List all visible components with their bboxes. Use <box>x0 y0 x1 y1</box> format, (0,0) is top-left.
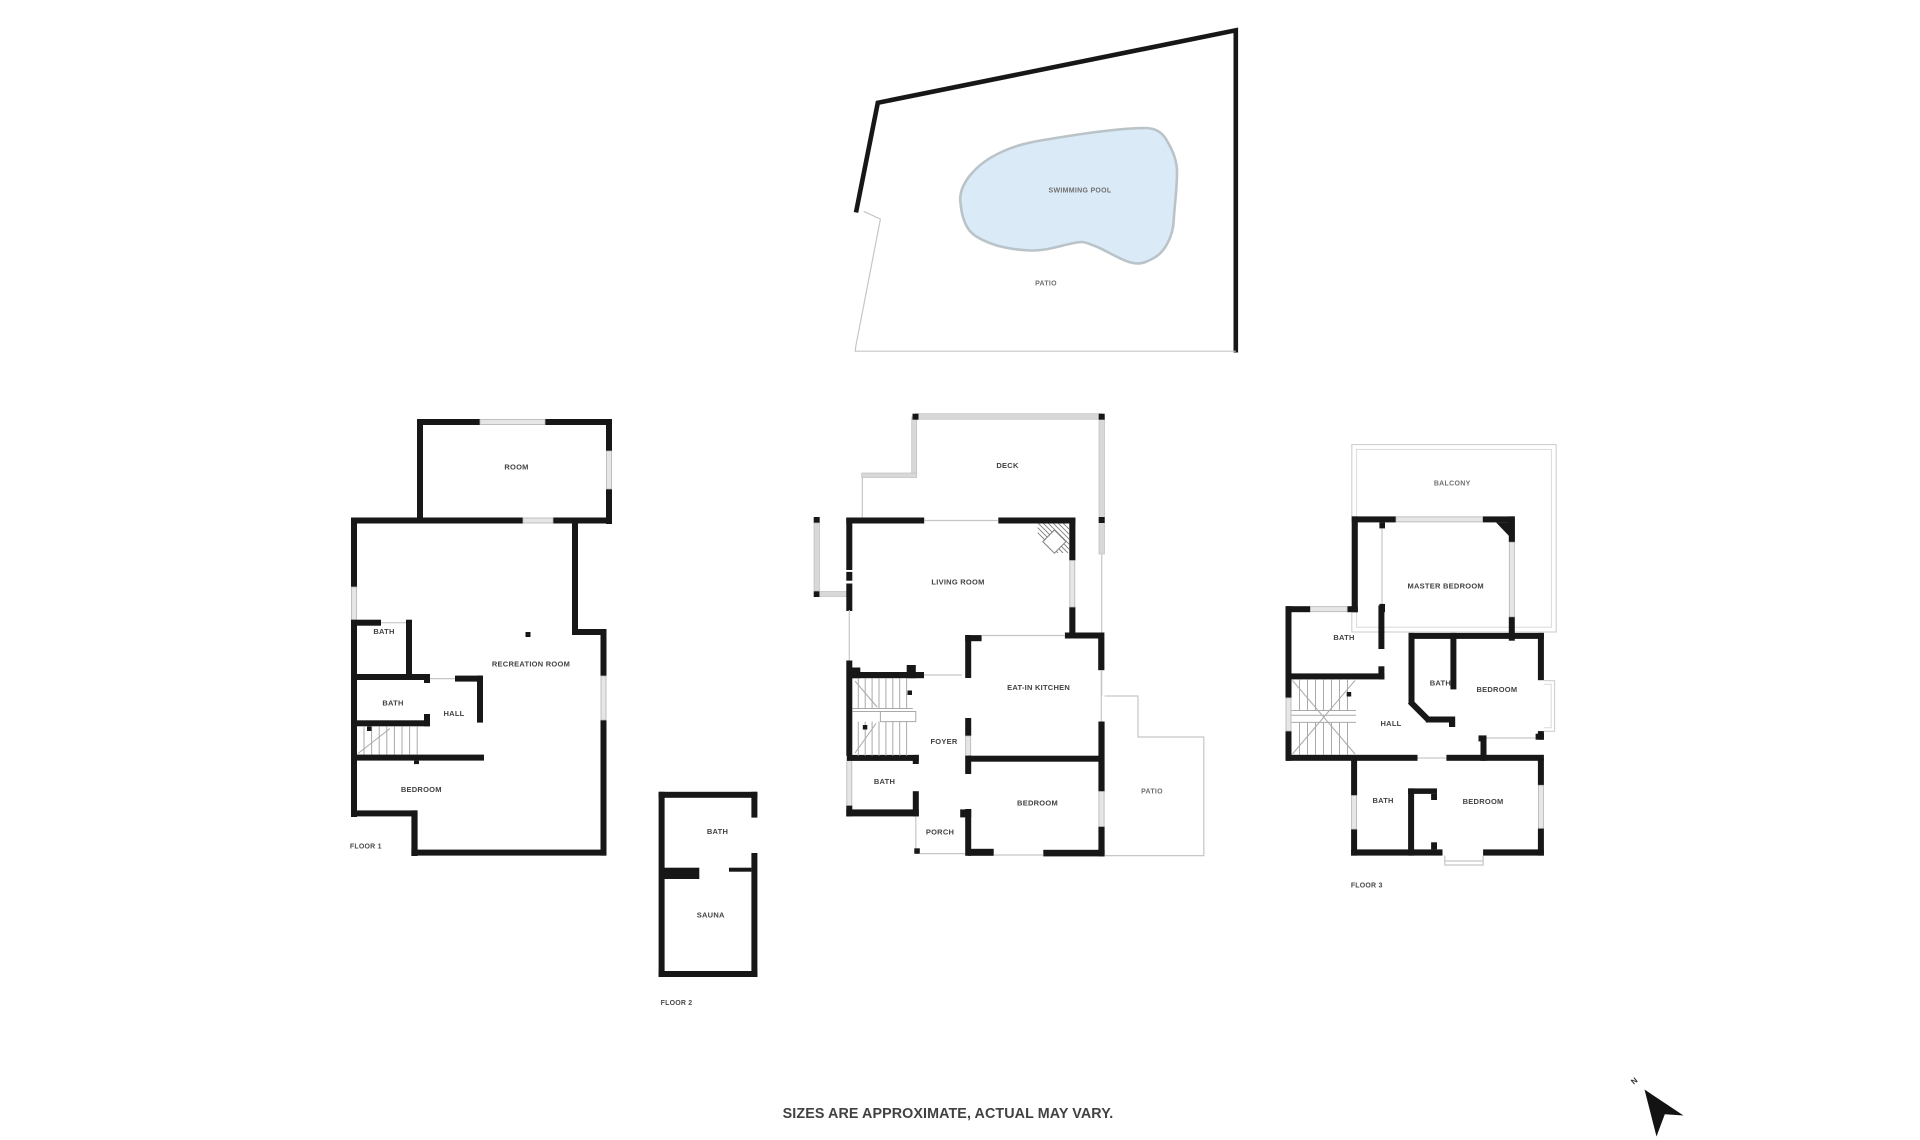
svg-text:HALL: HALL <box>444 709 465 718</box>
svg-text:BEDROOM: BEDROOM <box>1463 797 1504 806</box>
svg-text:FLOOR 2: FLOOR 2 <box>661 1000 693 1007</box>
svg-text:FOYER: FOYER <box>930 737 957 746</box>
svg-text:PORCH: PORCH <box>926 828 954 837</box>
svg-text:BATH: BATH <box>707 827 728 836</box>
svg-text:ROOM: ROOM <box>504 463 528 472</box>
svg-text:BEDROOM: BEDROOM <box>1017 798 1058 807</box>
svg-text:HALL: HALL <box>1381 719 1402 728</box>
svg-text:BATH: BATH <box>373 627 394 636</box>
svg-text:BEDROOM: BEDROOM <box>1476 685 1517 694</box>
svg-text:FLOOR 1: FLOOR 1 <box>350 844 382 851</box>
svg-text:SIZES ARE APPROXIMATE, ACTUAL: SIZES ARE APPROXIMATE, ACTUAL MAY VARY. <box>783 1106 1114 1122</box>
svg-text:MASTER BEDROOM: MASTER BEDROOM <box>1407 582 1483 591</box>
svg-text:BATH: BATH <box>1430 679 1451 688</box>
svg-text:BEDROOM: BEDROOM <box>401 785 442 794</box>
svg-text:PATIO: PATIO <box>1141 789 1163 796</box>
svg-text:BATH: BATH <box>874 777 895 786</box>
svg-text:BATH: BATH <box>1372 796 1393 805</box>
svg-text:RECREATION ROOM: RECREATION ROOM <box>492 660 570 669</box>
svg-text:EAT-IN KITCHEN: EAT-IN KITCHEN <box>1007 683 1070 692</box>
svg-text:BATH: BATH <box>1333 633 1354 642</box>
svg-text:SAUNA: SAUNA <box>697 911 725 920</box>
svg-text:DECK: DECK <box>996 461 1019 470</box>
svg-text:SWIMMING POOL: SWIMMING POOL <box>1048 188 1111 195</box>
svg-text:BATH: BATH <box>382 699 403 708</box>
svg-text:LIVING ROOM: LIVING ROOM <box>931 578 984 587</box>
svg-text:PATIO: PATIO <box>1035 281 1057 288</box>
svg-text:FLOOR 3: FLOOR 3 <box>1351 883 1383 890</box>
svg-text:BALCONY: BALCONY <box>1434 480 1471 487</box>
